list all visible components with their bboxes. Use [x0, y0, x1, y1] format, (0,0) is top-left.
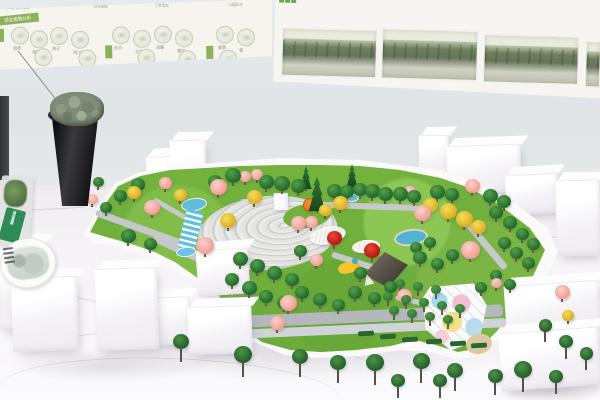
model-tree-round: [250, 259, 265, 276]
model-tree-round: [348, 286, 362, 302]
tree-crown: [559, 335, 573, 348]
tree-trunk: [337, 370, 339, 383]
tree-crown: [562, 310, 574, 321]
model-tree-street: [391, 374, 405, 399]
tree-trunk: [495, 288, 496, 291]
model-tree-grid: [437, 301, 447, 316]
model-tree-round: [121, 229, 136, 246]
tree-crown: [527, 238, 540, 250]
tree-trunk: [555, 383, 557, 394]
tree-trunk: [127, 243, 128, 246]
tree-crown: [285, 273, 299, 286]
tree-crown: [413, 353, 430, 369]
tree-crown: [144, 200, 160, 215]
tree-crown: [401, 295, 411, 305]
model-tree-round: [295, 286, 309, 302]
model-tree-pink: [144, 200, 160, 218]
tree-trunk: [429, 248, 430, 251]
tree-crown: [330, 355, 346, 370]
tree-trunk: [248, 295, 249, 298]
tree-trunk: [477, 234, 478, 237]
tree-crown: [294, 245, 307, 257]
tree-trunk: [447, 324, 448, 329]
tree-trunk: [471, 193, 472, 196]
model-tree-round: [504, 279, 516, 293]
tree-crown: [446, 249, 459, 261]
tree-trunk: [494, 383, 496, 395]
tree-crown: [354, 267, 367, 279]
tree-crown: [483, 189, 498, 203]
moss-bag: 高山苔藓 专用基质: [0, 175, 34, 247]
model-tree-grid: [401, 295, 411, 310]
tree-trunk: [421, 221, 422, 224]
tree-trunk: [319, 306, 320, 309]
tree-crown: [274, 176, 290, 191]
model-tree-yellow: [220, 213, 236, 231]
tree-trunk: [239, 266, 240, 269]
tree-trunk: [509, 290, 510, 293]
tree-trunk: [503, 208, 504, 211]
model-tree-street: [433, 374, 447, 399]
tree-trunk: [359, 279, 360, 282]
tree-trunk: [399, 201, 400, 204]
tree-crown: [425, 312, 435, 322]
model-tree-round: [431, 258, 444, 273]
tree-crown: [539, 319, 552, 331]
model-tree-street: [580, 347, 593, 370]
model-tree-grid: [389, 306, 399, 321]
tree-trunk: [105, 213, 106, 216]
model-tree-street: [413, 353, 430, 383]
tree-trunk: [565, 348, 567, 359]
tree-trunk: [374, 371, 376, 385]
model-tree-grid: [383, 292, 393, 307]
tree-trunk: [419, 264, 420, 267]
moss-in-bag: [3, 179, 27, 207]
tree-crown: [471, 220, 486, 234]
model-tree-pink: [465, 179, 480, 196]
tree-trunk: [301, 299, 302, 302]
tree-trunk: [503, 249, 504, 252]
model-tree-round: [424, 237, 436, 251]
tree-crown: [488, 369, 503, 383]
model-tree-round: [233, 252, 248, 269]
model-tree-round: [242, 281, 257, 298]
model-tree-round: [483, 189, 498, 206]
model-tree-grid: [413, 282, 423, 297]
model-tree-grid: [425, 312, 435, 327]
tree-trunk: [509, 229, 510, 232]
tree-crown: [504, 279, 516, 290]
tree-trunk: [97, 187, 98, 190]
tree-trunk: [371, 198, 372, 201]
tree-trunk: [567, 321, 568, 324]
tree-crown: [159, 177, 172, 189]
model-tree-yellow: [174, 189, 187, 204]
tree-trunk: [299, 364, 301, 377]
tree-trunk: [242, 363, 244, 377]
model-tree-yellow: [333, 196, 348, 213]
tree-trunk: [337, 311, 338, 314]
model-tree-street: [488, 369, 503, 395]
tree-crown: [368, 292, 381, 304]
tree-trunk: [316, 211, 317, 213]
model-tree-pink: [291, 216, 306, 233]
tree-crown: [100, 202, 112, 213]
tree-crown: [233, 252, 248, 266]
tree-crown: [393, 187, 408, 201]
tree-trunk: [417, 291, 418, 296]
tree-trunk: [231, 286, 232, 289]
model-tree-round: [267, 266, 282, 283]
tree-trunk: [244, 182, 245, 185]
tree-crown: [220, 213, 236, 228]
tree-crown: [348, 286, 362, 299]
tree-crown: [465, 179, 480, 193]
model-tree-round: [144, 238, 157, 253]
model-tree-round: [225, 168, 241, 186]
tree-crown: [270, 316, 285, 330]
model-tree-round: [274, 176, 290, 194]
model-tree-street: [234, 346, 252, 378]
tree-crown: [144, 238, 157, 250]
tree-trunk: [480, 293, 481, 296]
tree-trunk: [459, 313, 460, 318]
tree-trunk: [265, 189, 266, 192]
model-tree-pink: [196, 237, 214, 257]
tree-trunk: [256, 273, 257, 276]
model-tree-street: [173, 334, 189, 362]
tree-trunk: [276, 330, 277, 333]
model-tree-yellow: [471, 220, 486, 237]
tree-trunk: [324, 216, 325, 219]
model-tree-round: [114, 190, 127, 205]
model-tree-pink: [159, 177, 172, 192]
tree-trunk: [527, 269, 528, 272]
tree-crown: [295, 286, 309, 299]
tree-crown: [431, 258, 444, 270]
tree-crown: [437, 301, 447, 311]
tree-trunk: [585, 360, 587, 370]
tree-trunk: [299, 257, 300, 260]
model-tree-grid: [407, 309, 417, 324]
tree-crown: [250, 259, 265, 273]
model-tree-round: [100, 202, 112, 216]
model-tree-round: [489, 206, 503, 222]
tree-crown: [407, 309, 417, 319]
model-tree-round: [93, 177, 104, 190]
tree-crown: [391, 374, 405, 387]
tree-trunk: [91, 204, 92, 207]
tree-trunk: [310, 228, 311, 231]
photo-architectural-model: 适生植物分析 “飞鸟集”设计思路分章视角三章意向公园形式银杏海棠柿子鸡爪槭牡丹方…: [0, 0, 600, 400]
tree-crown: [327, 231, 342, 245]
tree-trunk: [411, 318, 412, 323]
model-tree-street: [549, 370, 563, 395]
tree-crown: [114, 190, 127, 202]
tree-crown: [259, 175, 274, 189]
tree-trunk: [435, 294, 436, 299]
tree-crown: [433, 374, 447, 387]
model-tree-grid: [431, 285, 441, 300]
tree-trunk: [297, 230, 298, 233]
model-tree-round: [294, 245, 307, 260]
tree-crown: [455, 304, 465, 314]
model-tree-yellow: [440, 203, 457, 222]
tree-trunk: [451, 261, 452, 264]
model-tree-pink: [310, 254, 323, 269]
model-tree-round: [446, 249, 459, 264]
tree-trunk: [253, 204, 254, 207]
tree-crown: [280, 295, 297, 311]
tree-trunk: [429, 321, 430, 326]
model-tree-round: [393, 187, 408, 204]
tree-trunk: [333, 245, 334, 249]
tree-trunk: [373, 304, 374, 307]
tree-crown: [413, 282, 423, 292]
tree-trunk: [287, 311, 288, 314]
tree-trunk: [439, 387, 441, 398]
tree-trunk: [149, 250, 150, 253]
model-tree-yellow: [319, 204, 332, 219]
model-tree-round: [332, 299, 345, 314]
model-tree-round: [259, 290, 273, 306]
tree-crown: [555, 285, 570, 299]
tree-crown: [173, 334, 189, 349]
model-trees: [0, 0, 600, 400]
tree-trunk: [227, 228, 228, 231]
tree-trunk: [273, 280, 274, 283]
model-tree-street: [366, 354, 384, 386]
model-tree-round: [368, 292, 381, 307]
model-tree-round: [354, 267, 367, 282]
tree-trunk: [315, 266, 316, 269]
tree-trunk: [371, 258, 372, 262]
tree-trunk: [217, 195, 218, 198]
model-tree-street: [330, 355, 346, 383]
tree-crown: [475, 282, 487, 293]
model-tree-pink: [280, 295, 297, 314]
tree-trunk: [420, 369, 422, 383]
model-tree-grid: [455, 304, 465, 319]
model-tree-grid: [443, 315, 453, 330]
tree-crown: [291, 179, 306, 193]
tree-trunk: [232, 183, 233, 186]
tree-trunk: [180, 349, 182, 362]
tree-crown: [491, 278, 502, 288]
tree-crown: [196, 237, 214, 254]
tree-trunk: [256, 180, 257, 183]
tree-crown: [383, 292, 393, 302]
model-tree-round: [225, 273, 239, 289]
model-tree-pink: [270, 316, 285, 333]
tree-crown: [414, 205, 431, 221]
succulent-plant: [50, 92, 104, 126]
model-tree-pink: [414, 205, 431, 224]
tree-crown: [514, 361, 532, 378]
model-tree-round: [378, 187, 393, 204]
tree-crown: [431, 285, 441, 295]
tree-trunk: [179, 201, 180, 204]
tree-crown: [522, 257, 535, 269]
tree-crown: [389, 306, 399, 316]
tree-crown: [242, 281, 257, 295]
model-tree-yellow: [127, 186, 141, 202]
tree-trunk: [339, 210, 340, 213]
model-tree-street: [447, 363, 463, 391]
tree-crown: [127, 186, 141, 199]
tree-crown: [489, 206, 503, 219]
tree-trunk: [151, 215, 152, 218]
tree-trunk: [436, 270, 437, 273]
tree-crown: [210, 179, 227, 195]
tree-crown: [407, 190, 421, 203]
tree-trunk: [305, 189, 306, 191]
model-tree-pink: [491, 278, 502, 291]
tree-crown: [174, 189, 187, 201]
tree-trunk: [164, 189, 165, 192]
tree-trunk: [544, 332, 546, 342]
tree-crown: [413, 251, 427, 264]
tree-crown: [319, 204, 332, 216]
tree-crown: [234, 346, 252, 363]
tree-trunk: [291, 286, 292, 289]
model-tree-round: [475, 282, 487, 296]
tree-trunk: [463, 227, 464, 230]
tree-trunk: [454, 378, 456, 391]
tree-crown: [440, 203, 457, 219]
tree-trunk: [495, 219, 496, 222]
tree-crown: [364, 243, 380, 258]
tree-trunk: [297, 193, 298, 196]
tree-crown: [445, 188, 459, 201]
tree-trunk: [359, 196, 360, 199]
tree-crown: [447, 363, 463, 378]
tree-crown: [395, 279, 405, 289]
tree-crown: [225, 168, 241, 183]
tree-crown: [259, 290, 273, 303]
tree-crown: [580, 347, 593, 359]
model-tree-pink: [210, 179, 227, 198]
tree-crown: [332, 299, 345, 311]
model-tree-round: [522, 257, 535, 272]
model-tree-round: [527, 238, 540, 253]
tree-crown: [419, 298, 429, 308]
model-tree-round: [313, 293, 327, 309]
model-tree-red: [327, 231, 342, 249]
model-tree-round: [407, 190, 421, 206]
tree-trunk: [204, 254, 205, 257]
model-tree-street: [539, 319, 552, 342]
model-tree-round: [291, 179, 306, 196]
tree-trunk: [133, 199, 134, 202]
tree-crown: [305, 216, 318, 228]
tree-trunk: [521, 240, 522, 243]
tree-crown: [292, 349, 308, 364]
tree-crown: [378, 187, 393, 201]
tree-crown: [310, 254, 323, 266]
model-tree-red: [364, 243, 380, 262]
model-tree-round: [413, 251, 427, 267]
tree-trunk: [119, 202, 120, 205]
tree-trunk: [447, 219, 448, 222]
tree-crown: [225, 273, 239, 286]
tree-trunk: [397, 387, 399, 398]
model-tree-pink: [461, 241, 480, 262]
model-tree-pink: [555, 285, 570, 302]
tree-crown: [549, 370, 563, 383]
tree-crown: [93, 177, 104, 187]
tree-trunk: [354, 299, 355, 302]
tree-crown: [313, 293, 327, 306]
tree-trunk: [384, 201, 385, 204]
tree-crown: [247, 190, 262, 204]
tree-crown: [291, 216, 306, 230]
tree-trunk: [561, 299, 562, 302]
tree-crown: [333, 196, 348, 210]
model-tree-street: [514, 361, 532, 393]
model-tree-grid: [419, 298, 429, 313]
model-tree-yellow: [562, 310, 574, 324]
tree-trunk: [265, 303, 266, 306]
model-tree-yellow: [247, 190, 262, 207]
model-tree-street: [559, 335, 573, 360]
tree-trunk: [393, 315, 394, 320]
tree-trunk: [515, 259, 516, 262]
tree-crown: [366, 354, 384, 371]
tree-crown: [443, 315, 453, 325]
tree-trunk: [522, 378, 524, 392]
tree-crown: [121, 229, 136, 243]
tree-crown: [267, 266, 282, 280]
tree-crown: [424, 237, 436, 248]
tree-trunk: [281, 191, 282, 194]
model-tree-street: [292, 349, 308, 377]
bag-label-text: 专用基质: [10, 211, 18, 226]
tree-trunk: [532, 250, 533, 253]
tree-crown: [461, 241, 480, 259]
model-tree-round: [445, 188, 459, 204]
model-tree-pink: [305, 216, 318, 231]
tree-trunk: [469, 259, 470, 262]
